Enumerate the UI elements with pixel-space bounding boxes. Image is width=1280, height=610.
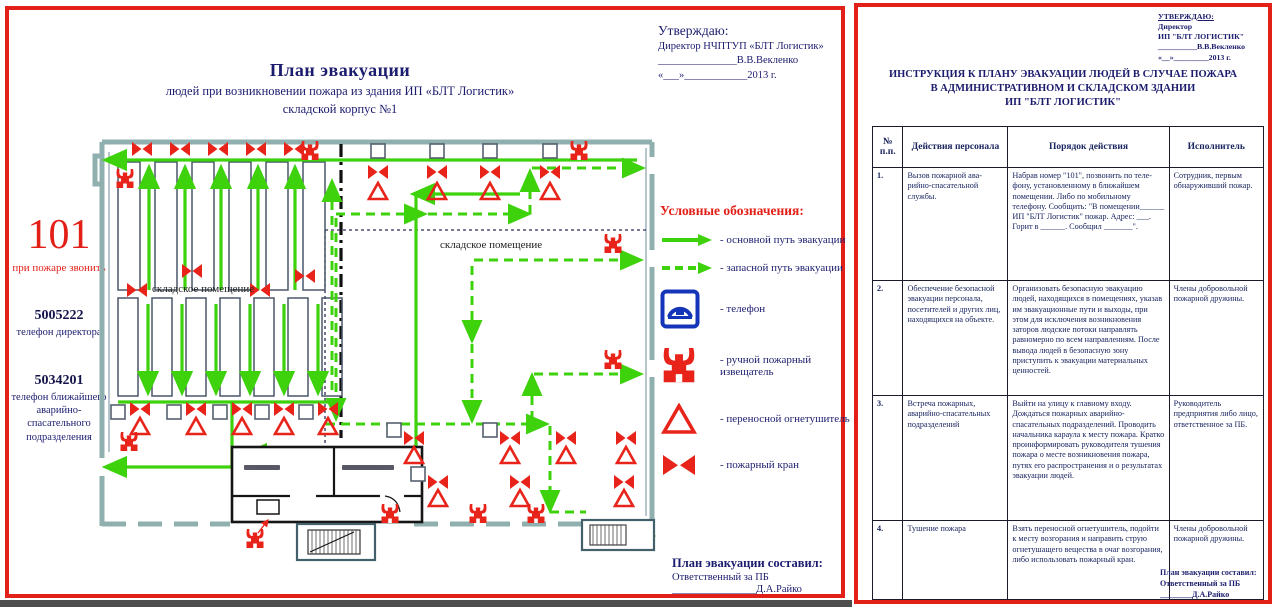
cell-executor: Сотрудник, первым обнаруживший пожар. bbox=[1169, 168, 1263, 281]
cell-procedure: Организовать безопасную эвакуацию людей,… bbox=[1008, 281, 1169, 396]
footer-left-line3: ________________Д.А.Райко bbox=[672, 584, 852, 595]
rack-rows-lower bbox=[118, 298, 342, 396]
approve-block-right: УТВЕРЖДАЮ: Директор ИП "БЛТ ЛОГИСТИК" __… bbox=[1158, 12, 1270, 63]
col-header-actions: Действия персонала bbox=[903, 127, 1008, 168]
fire-hydrant-icon bbox=[660, 453, 720, 477]
evacuation-plan-page: План эвакуации людей при возникновении п… bbox=[0, 0, 1280, 610]
table-row: 1. Вызов пожарной ава-рийно-спасательной… bbox=[873, 168, 1264, 281]
legend-label: - телефон bbox=[720, 303, 765, 315]
approve-right-line1: УТВЕРЖДАЮ: bbox=[1158, 12, 1270, 22]
approve-left-line1: Утверждаю: bbox=[658, 22, 853, 40]
extinguisher-icon bbox=[660, 403, 720, 435]
col-header-executor: Исполнитель bbox=[1169, 127, 1263, 168]
footer-block-left: План эвакуации составил: Ответственный з… bbox=[672, 556, 852, 595]
approve-left-line3: _______________В.В.Векленко bbox=[658, 54, 853, 68]
table-row: 2. Обеспечение безопасной эвакуации перс… bbox=[873, 281, 1264, 396]
manual-call-point-icon bbox=[660, 347, 720, 385]
footer-right-line1: План эвакуации составил: bbox=[1160, 568, 1275, 579]
stairwell-center bbox=[297, 524, 375, 560]
cell-num: 4. bbox=[873, 521, 903, 600]
cell-procedure: Набрав номер "101", позвонить по теле-фо… bbox=[1008, 168, 1169, 281]
footer-left-line2: Ответственный за ПБ bbox=[672, 572, 852, 583]
table-header-row: № п.п. Действия персонала Порядок действ… bbox=[873, 127, 1264, 168]
col-header-procedure: Порядок действия bbox=[1008, 127, 1169, 168]
instruction-title-line2: В АДМИНИСТРАТИВНОМ И СКЛАДСКОМ ЗДАНИИ bbox=[866, 82, 1260, 96]
phone-icon bbox=[660, 289, 720, 329]
legend-label: - ручной пожарный извещатель bbox=[720, 354, 850, 378]
cell-procedure: Выйти на улицу к главному входу. Дождать… bbox=[1008, 396, 1169, 521]
footer-block-right: План эвакуации составил: Ответственный з… bbox=[1160, 568, 1275, 600]
instruction-title-line1: ИНСТРУКЦИЯ К ПЛАНУ ЭВАКУАЦИИ ЛЮДЕЙ В СЛУ… bbox=[866, 68, 1260, 82]
plan-title-block: План эвакуации людей при возникновении п… bbox=[125, 60, 555, 117]
legend-label: - пожарный кран bbox=[720, 459, 799, 471]
legend: Условные обозначения: - основной путь эв… bbox=[660, 203, 850, 491]
solid-route-arrow-icon bbox=[660, 233, 720, 247]
hydrant-extinguisher-row-lower bbox=[111, 402, 338, 434]
cell-num: 3. bbox=[873, 396, 903, 521]
plan-subtitle-1: людей при возникновении пожара из здания… bbox=[125, 84, 555, 99]
footer-right-line2: Ответственный за ПБ bbox=[1160, 579, 1275, 590]
room-label-left: складское помещение bbox=[152, 283, 254, 295]
instruction-title: ИНСТРУКЦИЯ К ПЛАНУ ЭВАКУАЦИИ ЛЮДЕЙ В СЛУ… bbox=[866, 68, 1260, 111]
footer-right-line3: ________Д.А.Райко bbox=[1160, 590, 1275, 601]
instruction-title-line3: ИП "БЛТ ЛОГИСТИК" bbox=[866, 96, 1260, 110]
cell-action: Встреча пожарных, аварийно-спасательных … bbox=[903, 396, 1008, 521]
dashed-route-arrow-icon bbox=[660, 261, 720, 275]
approve-left-line2: Директор НЧПТУП «БЛТ Логистик» bbox=[658, 40, 853, 54]
legend-item-call-point: - ручной пожарный извещатель bbox=[660, 347, 850, 385]
table-row: 3. Встреча пожарных, аварийно-спасательн… bbox=[873, 396, 1264, 521]
footer-left-line1: План эвакуации составил: bbox=[672, 556, 852, 571]
legend-item-hydrant: - пожарный кран bbox=[660, 453, 850, 477]
stairwell-bottom-right bbox=[582, 520, 654, 550]
approve-right-line4: __________В.В.Векленко bbox=[1158, 42, 1270, 52]
cell-num: 1. bbox=[873, 168, 903, 281]
legend-item-phone: - телефон bbox=[660, 289, 850, 329]
office-block bbox=[232, 447, 422, 522]
cell-executor: Члены добровольной пожарной дружины. bbox=[1169, 281, 1263, 396]
col-header-num: № п.п. bbox=[873, 127, 903, 168]
instruction-table: № п.п. Действия персонала Порядок действ… bbox=[872, 126, 1264, 600]
approve-right-line5: «__»_________2013 г. bbox=[1158, 53, 1270, 63]
room-label-right: складское помещение bbox=[440, 239, 542, 251]
plan-subtitle-2: складской корпус №1 bbox=[125, 102, 555, 117]
legend-item-main-route: - основной путь эвакуации bbox=[660, 233, 850, 247]
approve-left-line4: «___»____________2013 г. bbox=[658, 69, 853, 83]
legend-label: - основной путь эвакуации bbox=[720, 234, 845, 246]
floor-plan-drawing: складское помещение складское помещение bbox=[92, 122, 667, 567]
legend-label: - запасной путь эвакуации bbox=[720, 262, 843, 274]
cell-executor: Руководитель предприятия либо лицо, отве… bbox=[1169, 396, 1263, 521]
cell-action: Вызов пожарной ава-рийно-спасательной сл… bbox=[903, 168, 1008, 281]
legend-item-extinguisher: - переносной огнетушитель bbox=[660, 403, 850, 435]
cell-procedure: Взять переносной огнетушитель, подойти к… bbox=[1008, 521, 1169, 600]
plan-title: План эвакуации bbox=[125, 60, 555, 81]
legend-label: - переносной огнетушитель bbox=[720, 413, 850, 425]
approve-block-left: Утверждаю: Директор НЧПТУП «БЛТ Логистик… bbox=[658, 22, 853, 83]
approve-right-line3: ИП "БЛТ ЛОГИСТИК" bbox=[1158, 32, 1270, 42]
legend-item-backup-route: - запасной путь эвакуации bbox=[660, 261, 850, 275]
cell-action: Обеспечение безопасной эвакуации персона… bbox=[903, 281, 1008, 396]
approve-right-line2: Директор bbox=[1158, 22, 1270, 32]
hydrant-extinguisher-rows-right bbox=[387, 423, 636, 506]
cell-action: Тушение пожара bbox=[903, 521, 1008, 600]
legend-title: Условные обозначения: bbox=[660, 203, 850, 219]
cell-num: 2. bbox=[873, 281, 903, 396]
scan-shadow-bar bbox=[0, 600, 852, 607]
